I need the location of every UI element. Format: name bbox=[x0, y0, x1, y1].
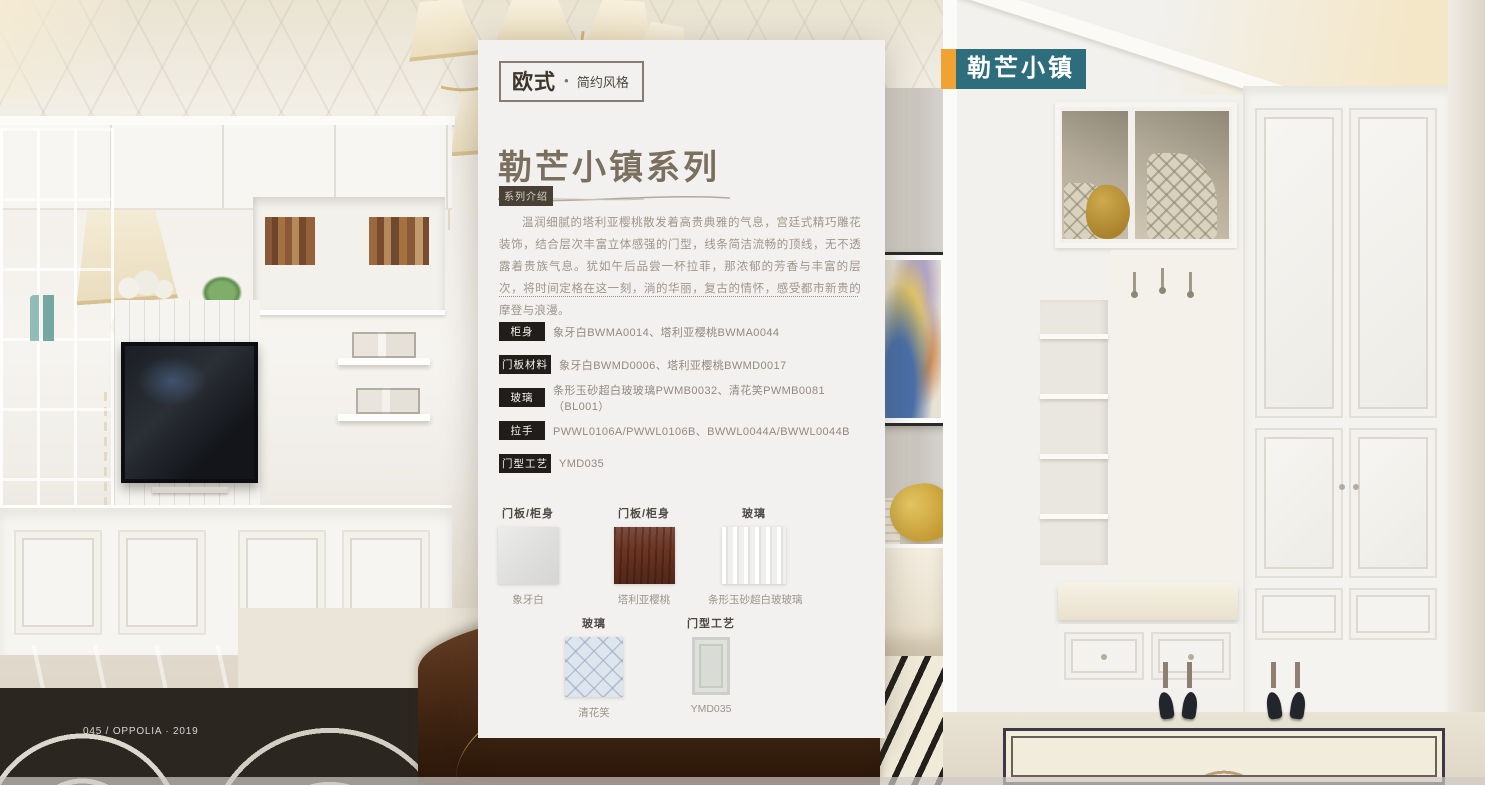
spec-list: 柜身 象牙白BWMA0014、塔利亚樱桃BWMA0044 门板材料 象牙白BWM… bbox=[499, 324, 869, 489]
wardrobe-door-panel bbox=[1349, 108, 1437, 418]
series-title: 勒芒小镇系列 bbox=[498, 140, 720, 189]
spec-row-glass: 玻璃 条形玉砂超白玻玻璃PWMB0032、清花笑PWMB0081（BL001） bbox=[499, 390, 869, 405]
wardrobe-door-panel bbox=[1349, 428, 1437, 578]
swatch-category: 门板/柜身 bbox=[600, 505, 688, 521]
ceiling-cove-light bbox=[0, 0, 120, 100]
high-heels-pair bbox=[1157, 688, 1209, 728]
crown-molding bbox=[0, 116, 455, 125]
door-knob bbox=[1353, 484, 1359, 490]
photo-frames bbox=[356, 388, 420, 414]
spec-chip: 柜身 bbox=[499, 322, 545, 341]
swatch-sample bbox=[498, 527, 559, 584]
door-knob bbox=[1339, 484, 1345, 490]
abstract-painting bbox=[876, 252, 943, 426]
books bbox=[369, 217, 429, 265]
spec-value: YMD035 bbox=[559, 458, 604, 470]
swatch-sample bbox=[722, 527, 786, 584]
style-primary-label: 欧式 bbox=[512, 66, 556, 96]
swatch-category: 玻璃 bbox=[546, 615, 642, 631]
right-room-photo bbox=[943, 0, 1485, 785]
page-number-label: 045 / OPPOLIA · 2019 bbox=[83, 726, 199, 737]
swatch-stripe-glass: 玻璃 条形玉砂超白玻玻璃 bbox=[708, 505, 800, 607]
open-bookshelf bbox=[253, 197, 445, 315]
spec-value: 象牙白BWMD0006、塔利亚樱桃BWMD0017 bbox=[559, 357, 787, 373]
swatch-caption: 塔利亚樱桃 bbox=[600, 592, 688, 607]
patterned-pillow bbox=[1147, 153, 1217, 239]
drawer-knob bbox=[1101, 654, 1107, 660]
spec-value: PWWL0106A/PWWL0106B、BWWL0044A/BWWL0044B bbox=[553, 423, 850, 439]
spec-chip: 门型工艺 bbox=[499, 454, 551, 473]
style-secondary-label: 简约风格 bbox=[577, 72, 629, 91]
spec-row-cabinet-body: 柜身 象牙白BWMA0014、塔利亚樱桃BWMA0044 bbox=[499, 324, 869, 339]
swatch-cherry: 门板/柜身 塔利亚樱桃 bbox=[600, 505, 688, 607]
spec-row-handle: 拉手 PWWL0106A/PWWL0106B、BWWL0044A/BWWL004… bbox=[499, 423, 869, 438]
floor-baseline bbox=[0, 777, 1485, 785]
shelf bbox=[1040, 394, 1108, 399]
ceiling-glow bbox=[1155, 0, 1485, 95]
swatch-caption: 清花笑 bbox=[546, 705, 642, 720]
dotted-divider bbox=[499, 296, 858, 297]
high-heels-pair bbox=[1265, 688, 1317, 728]
series-description: 温润细腻的塔利亚樱桃散发着高贵典雅的气息，宫廷式精巧雕花装饰，结合层次丰富立体感… bbox=[499, 212, 861, 322]
ribbon-series-name: 勒芒小镇 bbox=[956, 49, 1086, 89]
shelf-edge bbox=[253, 310, 445, 315]
swatch-lattice-glass: 玻璃 清花笑 bbox=[546, 615, 642, 720]
tv-reflection bbox=[137, 356, 207, 406]
open-shelves bbox=[1040, 300, 1108, 565]
bench-drawers bbox=[1058, 624, 1238, 688]
swatch-caption: YMD035 bbox=[663, 703, 759, 715]
tv-screen bbox=[121, 342, 258, 483]
coat-hook bbox=[1161, 268, 1164, 288]
shelf bbox=[1040, 454, 1108, 459]
decor-jars bbox=[116, 262, 174, 304]
tall-wardrobe bbox=[1243, 86, 1451, 738]
series-spec-card: 欧式 ● 简约风格 勒芒小镇系列 系列介绍 温润细腻的塔利亚樱桃散发着高贵典雅的… bbox=[478, 40, 885, 738]
wardrobe-door-panel bbox=[1255, 108, 1343, 418]
cubby-opening bbox=[1062, 111, 1128, 239]
catalog-page: 勒芒小镇 045 / OPPOLIA · 2019 欧式 ● 简约风格 勒芒小镇… bbox=[0, 0, 1485, 785]
wardrobe-drawer bbox=[1349, 588, 1437, 640]
swatch-caption: 条形玉砂超白玻玻璃 bbox=[708, 592, 800, 607]
swatch-sample bbox=[614, 527, 675, 584]
top-cubbies bbox=[1055, 102, 1237, 248]
teal-vases bbox=[30, 295, 64, 341]
shelf bbox=[1040, 514, 1108, 519]
far-wall bbox=[1448, 0, 1485, 785]
shelf bbox=[1040, 334, 1108, 339]
swatch-sample bbox=[692, 637, 730, 695]
entry-bench-cushion bbox=[1058, 582, 1238, 620]
hook-wall bbox=[1111, 250, 1237, 580]
swatch-category: 玻璃 bbox=[708, 505, 800, 521]
coat-hook bbox=[1189, 272, 1192, 292]
photo-frames bbox=[352, 332, 416, 358]
swatch-caption: 象牙白 bbox=[484, 592, 572, 607]
series-ribbon: 勒芒小镇 bbox=[941, 49, 1086, 89]
cabinet-edge-highlight bbox=[943, 0, 957, 785]
spec-chip: 玻璃 bbox=[499, 388, 545, 407]
floating-shelf bbox=[338, 414, 430, 421]
painting-canvas bbox=[881, 260, 941, 418]
swatch-category: 门板/柜身 bbox=[484, 505, 572, 521]
coat-hook bbox=[1133, 272, 1136, 292]
section-intro-badge: 系列介绍 bbox=[499, 186, 553, 206]
dot-icon: ● bbox=[564, 77, 569, 85]
wardrobe-drawer bbox=[1255, 588, 1343, 640]
books bbox=[265, 217, 315, 265]
cabinet-door bbox=[14, 530, 102, 635]
drawer-knob bbox=[1188, 654, 1194, 660]
floating-shelf bbox=[338, 358, 430, 365]
wardrobe-door-panel bbox=[1255, 428, 1343, 578]
spec-chip: 门板材料 bbox=[499, 355, 551, 374]
cabinet-door bbox=[118, 530, 206, 635]
swatch-sample bbox=[565, 637, 623, 697]
spec-chip: 拉手 bbox=[499, 421, 545, 440]
spec-value: 象牙白BWMA0014、塔利亚樱桃BWMA0044 bbox=[553, 324, 779, 340]
cubby-opening bbox=[1135, 111, 1229, 239]
swatch-door-style: 门型工艺 YMD035 bbox=[663, 615, 759, 715]
style-badge: 欧式 ● 简约风格 bbox=[499, 61, 644, 102]
tv-stand bbox=[152, 487, 228, 493]
spec-value: 条形玉砂超白玻玻璃PWMB0032、清花笑PWMB0081（BL001） bbox=[553, 382, 869, 414]
swatch-category: 门型工艺 bbox=[663, 615, 759, 631]
swatch-ivory: 门板/柜身 象牙白 bbox=[484, 505, 572, 607]
dark-patterned-rug bbox=[0, 688, 458, 785]
spec-row-door-style: 门型工艺 YMD035 bbox=[499, 456, 869, 471]
spec-row-door-material: 门板材料 象牙白BWMD0006、塔利亚樱桃BWMD0017 bbox=[499, 357, 869, 372]
ribbon-orange-bar bbox=[941, 49, 956, 89]
